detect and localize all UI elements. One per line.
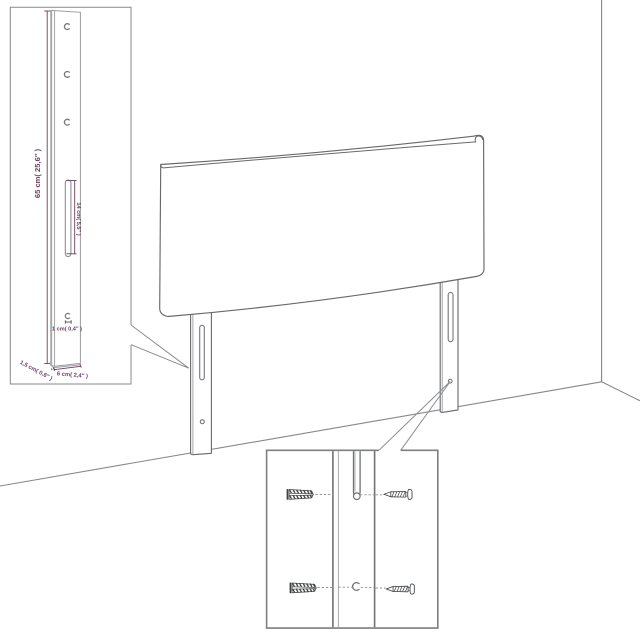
svg-text:65 cm( 25,6″ ): 65 cm( 25,6″ )	[33, 148, 42, 198]
svg-text:14 cm( 5,5″ ): 14 cm( 5,5″ )	[75, 202, 81, 235]
svg-text:1 cm( 0,4″ ): 1 cm( 0,4″ )	[52, 327, 82, 333]
